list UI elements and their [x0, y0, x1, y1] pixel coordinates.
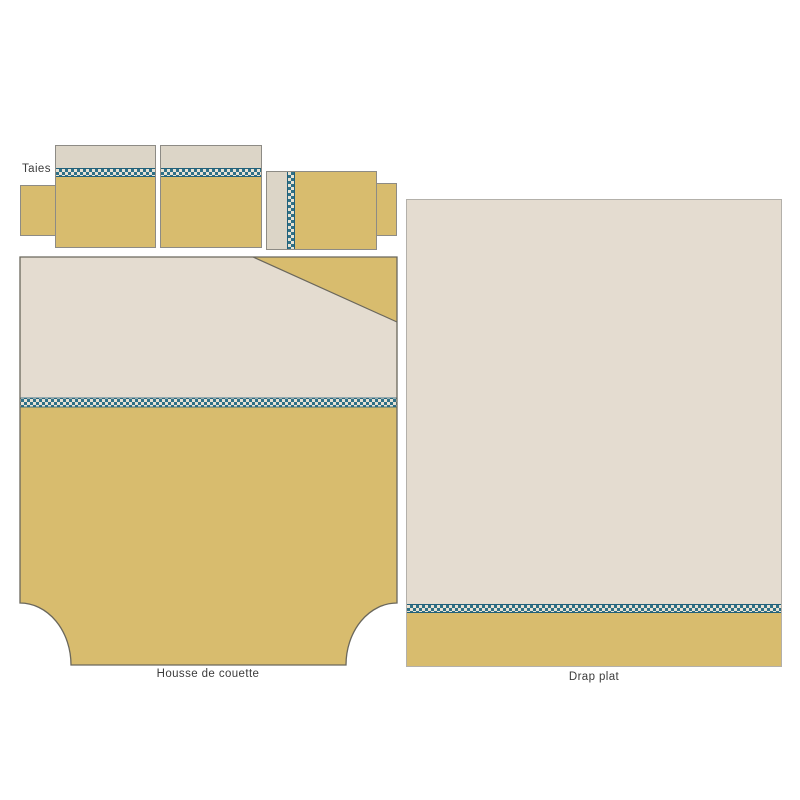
flat-sheet-hem-panel: [407, 613, 781, 666]
duvet-stitch-band: [20, 398, 397, 407]
duvet-cover-label: Housse de couette: [98, 668, 318, 680]
flat-sheet-stitch-band: [407, 604, 781, 613]
flat-sheet: [406, 199, 782, 667]
bedding-pattern-diagram: Taies Housse: [0, 0, 800, 800]
flat-sheet-label: Drap plat: [484, 671, 704, 683]
